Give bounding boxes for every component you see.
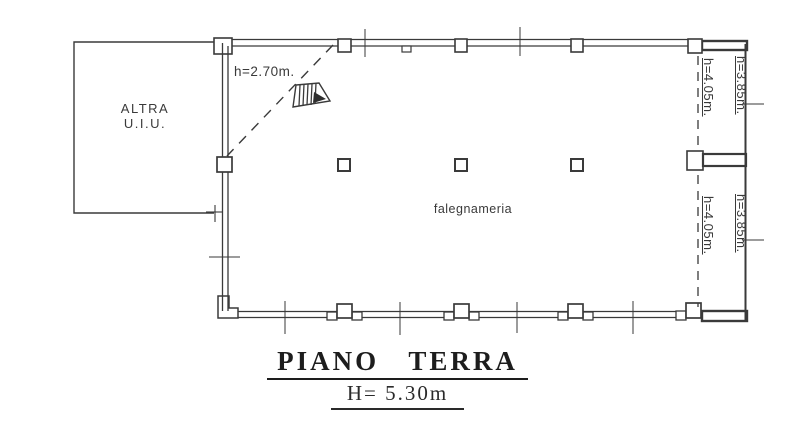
height-label-lower-right: h=3.85m. (734, 194, 749, 253)
left-wall (206, 43, 240, 311)
left-wall-pillar (217, 157, 232, 172)
bottom-wall-pillar (676, 303, 701, 320)
top-wall-pillar (455, 39, 467, 52)
plan-subtitle-row: H= 5.30m (0, 381, 795, 410)
plan-title-row: PIANO TERRA (0, 346, 795, 380)
plan-title: PIANO TERRA (267, 346, 528, 380)
top-wall (214, 38, 747, 54)
stairs-height-label: h=2.70m. (234, 64, 295, 79)
top-wall-pillar (688, 39, 702, 53)
main-room-label: falegnameria (413, 202, 533, 216)
height-label-upper-right: h=3.85m. (734, 56, 749, 115)
top-wall-pillar (338, 39, 351, 52)
altra-room-label-line2: U.I.U. (85, 116, 205, 131)
interior-pillars (338, 159, 583, 171)
bottom-wall-pillar (327, 304, 362, 320)
bottom-wall (218, 296, 747, 321)
bottom-wall-pillar (558, 304, 593, 320)
bottom-wall-pillar (444, 304, 479, 320)
dimension-ticks (285, 27, 633, 335)
top-wall-tab (402, 46, 411, 52)
altra-room-label: ALTRA U.I.U. (85, 101, 205, 131)
plan-height-subtitle: H= 5.30m (331, 381, 464, 410)
height-label-lower-left: h=4.05m. (701, 196, 716, 255)
top-wall-pillar (571, 39, 583, 52)
altra-room-label-line1: ALTRA (85, 101, 205, 116)
floor-plan-sheet: ALTRA U.I.U. h=2.70m. falegnameria h=4.0… (0, 0, 795, 443)
right-stub-wall (687, 151, 746, 170)
height-label-upper-left: h=4.05m. (701, 58, 716, 117)
stairs-symbol (293, 83, 330, 107)
